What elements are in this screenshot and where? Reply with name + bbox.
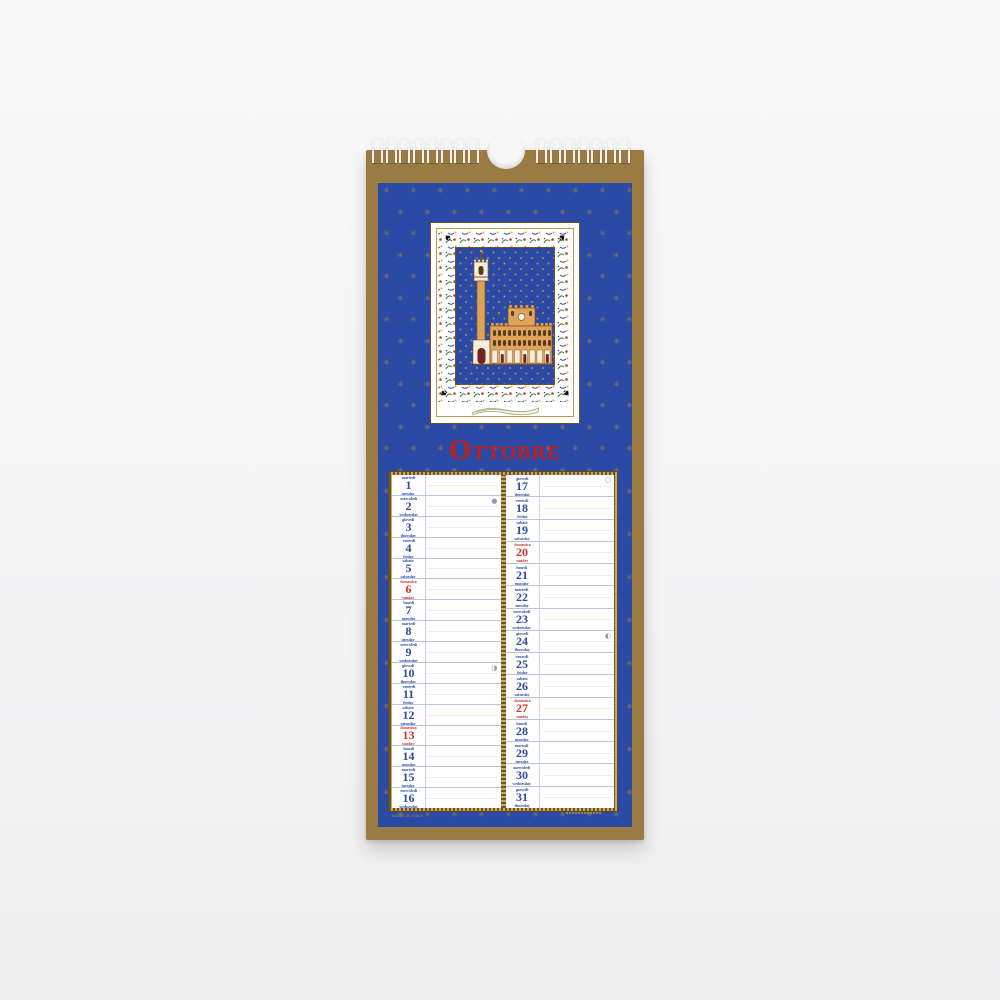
spiral-loop <box>536 137 547 163</box>
day-row: sabato19saturday <box>506 520 615 542</box>
star-icon: ✳ <box>532 424 539 432</box>
spiral-loop <box>578 137 589 163</box>
fine-print-right <box>566 812 602 814</box>
day-number: 4 <box>406 543 412 553</box>
day-cell: mercoledì2wednesday <box>392 496 426 516</box>
notes-area <box>540 542 615 563</box>
spiral-loop <box>550 137 561 163</box>
star-icon: ✳ <box>626 488 632 496</box>
day-cell: venerdì25friday <box>506 653 540 674</box>
star-icon: ✳ <box>410 316 417 324</box>
star-icon: ✳ <box>451 209 458 217</box>
star-icon: ✳ <box>599 402 606 410</box>
notes-midline <box>429 631 498 632</box>
star-icon: ✳ <box>397 295 404 303</box>
star-icon: ✳ <box>626 316 632 324</box>
day-row: domenica20sunday <box>506 542 615 564</box>
day-number: 20 <box>516 547 528 557</box>
star-icon: ✳ <box>491 187 498 195</box>
day-name-italian: domenica <box>514 699 530 701</box>
day-number: 6 <box>406 584 412 594</box>
day-number: 22 <box>516 592 528 602</box>
day-row: lunedì28monday <box>506 720 615 742</box>
notes-area <box>540 520 615 541</box>
day-cell: venerdì18friday <box>506 497 540 518</box>
spiral-loop <box>591 137 602 163</box>
day-name-italian: venerdì <box>516 499 529 501</box>
day-cell: venerdì4friday <box>392 538 426 558</box>
spiral-loop <box>427 137 438 163</box>
notes-area <box>426 600 501 620</box>
day-name-english: tuesday <box>515 604 528 606</box>
day-name-english: thursday <box>514 804 529 806</box>
notes-area <box>426 746 501 766</box>
notes-area <box>426 684 501 704</box>
day-number: 14 <box>403 751 415 761</box>
spiral-loop <box>564 137 575 163</box>
star-icon: ✳ <box>424 424 431 432</box>
day-cell: domenica6sunday <box>392 579 426 599</box>
day-row: domenica6sunday <box>392 579 501 600</box>
notes-area <box>540 586 615 607</box>
day-number: 3 <box>406 522 412 532</box>
star-icon: ✳ <box>613 381 620 389</box>
day-cell: sabato5saturday <box>392 559 426 579</box>
day-cell: lunedì28monday <box>506 720 540 741</box>
notes-area <box>426 788 501 808</box>
day-cell: martedì29tuesday <box>506 742 540 763</box>
day-number: 1 <box>406 480 412 490</box>
notes-midline <box>543 664 612 665</box>
star-icon: ✳ <box>545 187 552 195</box>
star-icon: ✳ <box>383 359 390 367</box>
spiral-loop <box>372 137 383 163</box>
star-icon: ✳ <box>586 424 593 432</box>
day-name-english: saturday <box>514 693 529 695</box>
notes-midline <box>543 708 612 709</box>
day-row: venerdì11friday <box>392 684 501 705</box>
notes-area <box>426 767 501 787</box>
day-row: mercoledì23wednesday <box>506 609 615 631</box>
star-icon: ✳ <box>559 209 566 217</box>
day-name-italian: martedì <box>402 622 416 624</box>
day-row: domenica13sunday <box>392 726 501 747</box>
day-row: mercoledì2wednesday● <box>392 496 501 517</box>
star-icon: ✳ <box>599 230 606 238</box>
day-row: sabato12saturday <box>392 705 501 726</box>
star-icon: ✳ <box>626 230 632 238</box>
product-photo-background: ✳✳✳✳✳✳✳✳✳✳✳✳✳✳✳✳✳✳✳✳✳✳✳✳✳✳✳✳✳✳✳✳✳✳✳✳✳✳✳✳… <box>0 0 1000 1000</box>
notes-midline <box>543 552 612 553</box>
notes-area <box>540 675 615 696</box>
day-cell: giovedì10thursday <box>392 663 426 683</box>
star-icon: ✳ <box>410 359 417 367</box>
notes-midline <box>543 597 612 598</box>
day-row: martedì15tuesday <box>392 767 501 788</box>
day-number: 24 <box>516 636 528 646</box>
day-cell: mercoledì23wednesday <box>506 609 540 630</box>
day-name-italian: mercoledì <box>400 497 417 499</box>
notes-midline <box>543 797 612 798</box>
star-icon: ✳ <box>383 402 390 410</box>
day-number: 13 <box>403 730 415 740</box>
star-icon: ✳ <box>586 209 593 217</box>
day-name-english: tuesday <box>402 784 415 786</box>
date-column-right: giovedì17thursday○venerdì18fridaysabato1… <box>506 475 615 808</box>
day-cell: martedì8tuesday <box>392 621 426 641</box>
day-name-english: thursday <box>401 534 416 536</box>
notes-midline <box>543 575 612 576</box>
day-number: 26 <box>516 681 528 691</box>
day-name-english: sunday <box>402 742 414 744</box>
star-icon: ✳ <box>424 209 431 217</box>
star-icon: ✳ <box>613 338 620 346</box>
day-cell: domenica13sunday <box>392 726 426 746</box>
day-name-italian: lunedì <box>517 566 528 568</box>
notes-midline <box>543 641 612 642</box>
day-name-italian: sabato <box>516 521 527 523</box>
notes-area <box>426 726 501 746</box>
day-name-italian: lunedì <box>517 722 528 724</box>
notes-area <box>540 609 615 630</box>
day-cell: lunedì14monday <box>392 746 426 766</box>
notes-area: ◐ <box>540 631 615 652</box>
day-number: 12 <box>403 710 415 720</box>
day-cell: sabato12saturday <box>392 705 426 725</box>
day-number: 30 <box>516 770 528 780</box>
star-icon: ✳ <box>383 230 390 238</box>
star-icon: ✳ <box>397 252 404 260</box>
day-cell: sabato26saturday <box>506 675 540 696</box>
day-number: 11 <box>403 689 414 699</box>
day-name-italian: martedì <box>515 588 529 590</box>
blue-panel: ✳✳✳✳✳✳✳✳✳✳✳✳✳✳✳✳✳✳✳✳✳✳✳✳✳✳✳✳✳✳✳✳✳✳✳✳✳✳✳✳… <box>378 183 632 827</box>
day-row: venerdì25friday <box>506 653 615 675</box>
star-icon: ✳ <box>532 209 539 217</box>
star-icon: ✳ <box>626 402 632 410</box>
day-name-english: thursday <box>514 648 529 650</box>
day-name-english: wednesday <box>399 805 418 807</box>
notes-midline <box>429 673 498 674</box>
spiral-loop <box>386 137 397 163</box>
day-number: 23 <box>516 614 528 624</box>
star-icon: ✳ <box>397 424 404 432</box>
day-name-italian: venerdì <box>402 539 415 541</box>
day-name-italian: martedì <box>402 476 416 478</box>
notes-midline <box>429 548 498 549</box>
star-icon: ✳ <box>478 209 485 217</box>
day-row: venerdì4friday <box>392 538 501 559</box>
star-icon: ✳ <box>626 531 632 539</box>
day-number: 2 <box>406 501 412 511</box>
day-name-english: wednesday <box>399 659 418 661</box>
day-name-english: saturday <box>401 722 416 724</box>
day-row: giovedì3thursday <box>392 517 501 538</box>
notes-area <box>540 653 615 674</box>
spiral-loop <box>399 137 410 163</box>
day-name-italian: martedì <box>515 744 529 746</box>
moon-phase-icon: ◑ <box>491 664 497 672</box>
day-number: 29 <box>516 748 528 758</box>
moon-phase-icon: ○ <box>605 476 611 484</box>
notes-area: ○ <box>540 475 615 496</box>
notes-midline <box>429 610 498 611</box>
notes-area <box>426 621 501 641</box>
day-number: 15 <box>403 772 415 782</box>
moon-phase-icon: ● <box>491 497 497 505</box>
day-number: 28 <box>516 726 528 736</box>
star-icon: ✳ <box>383 316 390 324</box>
notes-midline <box>429 777 498 778</box>
star-icon: ✳ <box>586 381 593 389</box>
day-name-english: friday <box>517 515 527 517</box>
notes-area: ● <box>426 496 501 516</box>
star-icon: ✳ <box>383 273 390 281</box>
day-row: martedì22tuesday <box>506 586 615 608</box>
day-name-english: saturday <box>401 575 416 577</box>
star-icon: ✳ <box>599 187 606 195</box>
star-icon: ✳ <box>397 381 404 389</box>
notes-area <box>540 742 615 763</box>
star-icon: ✳ <box>613 209 620 217</box>
day-row: giovedì17thursday○ <box>506 475 615 497</box>
star-icon: ✳ <box>599 273 606 281</box>
day-name-italian: domenica <box>514 543 530 545</box>
day-name-italian: venerdì <box>516 655 529 657</box>
spiral-loop <box>605 137 616 163</box>
day-row: domenica27sunday <box>506 698 615 720</box>
notes-area <box>426 559 501 579</box>
day-row: sabato5saturday <box>392 559 501 580</box>
day-name-italian: giovedì <box>516 632 528 634</box>
star-icon: ✳ <box>626 703 632 711</box>
star-icon: ✳ <box>518 187 525 195</box>
day-number: 19 <box>516 525 528 535</box>
notes-midline <box>429 694 498 695</box>
day-name-english: monday <box>515 582 529 584</box>
notes-midline <box>543 753 612 754</box>
star-icon: ✳ <box>599 316 606 324</box>
day-row: giovedì24thursday◐ <box>506 631 615 653</box>
day-name-english: sunday <box>402 596 414 598</box>
day-row: giovedì31thursday <box>506 787 615 808</box>
notes-midline <box>429 735 498 736</box>
day-cell: domenica27sunday <box>506 698 540 719</box>
day-row: mercoledì30wednesday <box>506 764 615 786</box>
star-icon: ✳ <box>613 424 620 432</box>
notes-area <box>540 564 615 585</box>
day-cell: domenica20sunday <box>506 542 540 563</box>
day-cell: giovedì3thursday <box>392 517 426 537</box>
day-number: 5 <box>406 563 412 573</box>
spiral-loop <box>619 137 630 163</box>
day-row: martedì8tuesday <box>392 621 501 642</box>
notes-midline <box>429 756 498 757</box>
notes-area <box>540 698 615 719</box>
day-name-italian: sabato <box>403 559 414 561</box>
day-row: giovedì10thursday◑ <box>392 663 501 684</box>
day-number: 17 <box>516 481 528 491</box>
month-title: Ottobre <box>378 435 632 465</box>
day-name-english: thursday <box>514 493 529 495</box>
moon-phase-icon: ◐ <box>605 632 611 640</box>
dates-panel: martedì1tuesdaymercoledì2wednesday●giove… <box>388 471 618 812</box>
notes-area <box>540 787 615 808</box>
day-row: martedì29tuesday <box>506 742 615 764</box>
day-name-italian: mercoledì <box>400 643 417 645</box>
notes-area <box>426 579 501 599</box>
notes-midline <box>543 686 612 687</box>
notes-midline <box>543 731 612 732</box>
star-icon: ✳ <box>397 338 404 346</box>
day-number: 7 <box>406 605 412 615</box>
day-row: lunedì21monday <box>506 564 615 586</box>
notes-midline <box>429 485 498 486</box>
day-number: 21 <box>516 570 528 580</box>
notes-midline <box>543 775 612 776</box>
date-column-left: martedì1tuesdaymercoledì2wednesday●giove… <box>392 475 501 808</box>
day-cell: mercoledì16wednesday <box>392 788 426 808</box>
day-cell: giovedì17thursday <box>506 475 540 496</box>
day-name-italian: domenica <box>400 580 416 582</box>
day-cell: mercoledì30wednesday <box>506 764 540 785</box>
day-row: lunedì7monday <box>392 600 501 621</box>
day-cell: giovedì31thursday <box>506 787 540 808</box>
day-name-english: tuesday <box>402 638 415 640</box>
day-name-english: friday <box>403 701 413 703</box>
day-number: 31 <box>516 792 528 802</box>
notes-midline <box>429 798 498 799</box>
day-name-english: saturday <box>514 537 529 539</box>
star-icon: ✳ <box>464 187 471 195</box>
star-icon: ✳ <box>437 187 444 195</box>
star-icon: ✳ <box>586 338 593 346</box>
notes-midline <box>543 486 612 487</box>
day-name-english: monday <box>402 763 416 765</box>
day-number: 8 <box>406 626 412 636</box>
day-name-english: monday <box>515 738 529 740</box>
day-row: sabato26saturday <box>506 675 615 697</box>
day-name-english: monday <box>402 617 416 619</box>
day-cell: sabato19saturday <box>506 520 540 541</box>
star-icon: ✳ <box>626 789 632 797</box>
star-icon: ✳ <box>626 574 632 582</box>
notes-midline <box>429 506 498 507</box>
notes-midline <box>543 508 612 509</box>
day-name-italian: sabato <box>403 706 414 708</box>
star-icon: ✳ <box>613 252 620 260</box>
day-number: 16 <box>403 793 415 803</box>
day-cell: martedì15tuesday <box>392 767 426 787</box>
day-name-italian: giovedì <box>516 477 528 479</box>
day-name-italian: giovedì <box>402 518 414 520</box>
day-name-english: tuesday <box>402 492 415 494</box>
day-number: 10 <box>403 668 415 678</box>
day-name-english: sunday <box>516 715 528 717</box>
notes-area <box>426 705 501 725</box>
notes-area <box>540 497 615 518</box>
day-name-english: wednesday <box>513 782 532 784</box>
notes-midline <box>429 568 498 569</box>
star-icon: ✳ <box>613 295 620 303</box>
day-number: 9 <box>406 647 412 657</box>
day-name-italian: sabato <box>516 677 527 679</box>
day-cell: mercoledì9wednesday <box>392 642 426 662</box>
day-cell: venerdì11friday <box>392 684 426 704</box>
star-icon: ✳ <box>626 617 632 625</box>
day-name-italian: mercoledì <box>514 610 531 612</box>
star-icon: ✳ <box>410 230 417 238</box>
notes-area <box>426 517 501 537</box>
day-name-italian: lunedì <box>403 747 414 749</box>
star-icon: ✳ <box>451 424 458 432</box>
star-icon: ✳ <box>397 209 404 217</box>
notes-midline <box>429 652 498 653</box>
star-icon: ✳ <box>505 424 512 432</box>
day-row: martedì1tuesday <box>392 475 501 496</box>
illustration-svg: ♠ ♠ ♠ ♠ <box>430 222 580 424</box>
spiral-loop <box>441 137 452 163</box>
star-icon: ✳ <box>586 252 593 260</box>
star-icon: ✳ <box>572 187 579 195</box>
day-cell: lunedì21monday <box>506 564 540 585</box>
day-name-italian: martedì <box>402 768 416 770</box>
calendar-board: ✳✳✳✳✳✳✳✳✳✳✳✳✳✳✳✳✳✳✳✳✳✳✳✳✳✳✳✳✳✳✳✳✳✳✳✳✳✳✳✳… <box>366 150 644 840</box>
notes-area <box>540 764 615 785</box>
spiral-loop <box>468 137 479 163</box>
day-name-italian: giovedì <box>402 664 414 666</box>
day-name-english: wednesday <box>399 513 418 515</box>
day-row: lunedì14monday <box>392 746 501 767</box>
day-name-italian: domenica <box>400 726 416 728</box>
notes-midline <box>543 619 612 620</box>
star-icon: ✳ <box>599 359 606 367</box>
star-icon: ✳ <box>410 273 417 281</box>
notes-area <box>426 642 501 662</box>
spiral-loop <box>413 137 424 163</box>
star-icon: ✳ <box>478 424 485 432</box>
notes-midline <box>429 715 498 716</box>
star-icon: ✳ <box>559 424 566 432</box>
day-name-english: thursday <box>401 680 416 682</box>
star-icon: ✳ <box>626 359 632 367</box>
day-name-english: tuesday <box>515 760 528 762</box>
day-cell: martedì22tuesday <box>506 586 540 607</box>
star-icon: ✳ <box>626 187 632 195</box>
hanger-notch <box>487 132 525 169</box>
star-icon: ✳ <box>626 660 632 668</box>
day-name-italian: lunedì <box>403 601 414 603</box>
day-row: venerdì18friday <box>506 497 615 519</box>
day-cell: giovedì24thursday <box>506 631 540 652</box>
notes-midline <box>429 589 498 590</box>
day-name-italian: giovedì <box>516 788 528 790</box>
star-icon: ✳ <box>626 273 632 281</box>
siena-palazzo-pubblico-illustration: ♠ ♠ ♠ ♠ <box>430 222 580 424</box>
notes-area: ◑ <box>426 663 501 683</box>
notes-area <box>540 720 615 741</box>
day-row: mercoledì9wednesday <box>392 642 501 663</box>
day-cell: martedì1tuesday <box>392 475 426 495</box>
day-cell: lunedì7monday <box>392 600 426 620</box>
day-name-italian: mercoledì <box>400 789 417 791</box>
day-row: mercoledì16wednesday <box>392 788 501 808</box>
day-name-english: sunday <box>516 559 528 561</box>
star-icon: ✳ <box>410 187 417 195</box>
day-number: 25 <box>516 659 528 669</box>
day-number: 18 <box>516 503 528 513</box>
day-name-italian: venerdì <box>402 685 415 687</box>
